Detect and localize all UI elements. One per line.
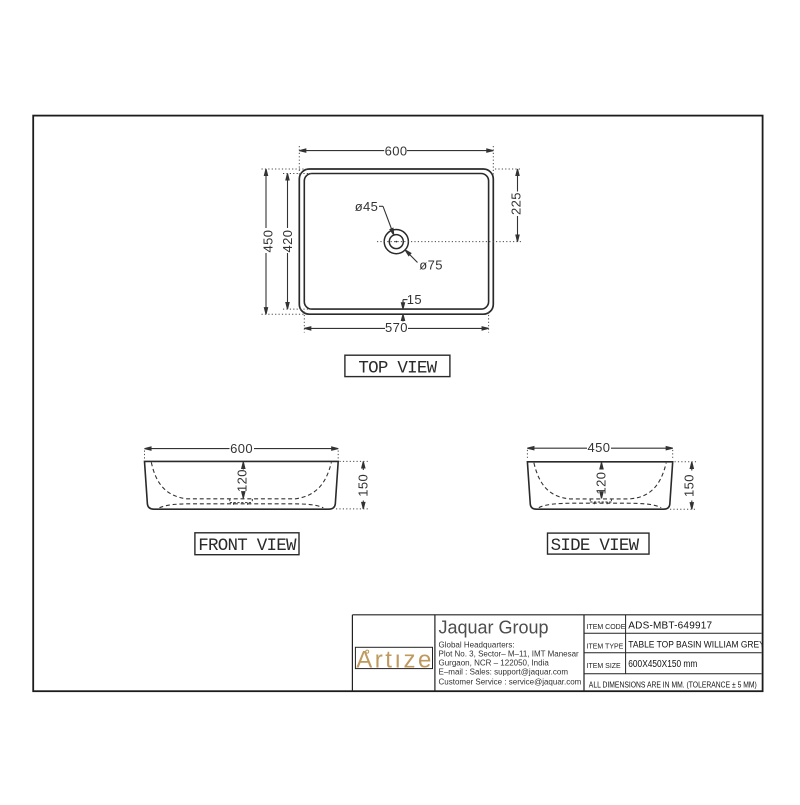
svg-text:TABLE TOP BASIN WILLIAM GREY: TABLE TOP BASIN WILLIAM GREY (628, 640, 765, 651)
svg-text:TOP VIEW: TOP VIEW (358, 359, 437, 379)
svg-text:ø75: ø75 (419, 258, 443, 273)
svg-text:150: 150 (682, 474, 697, 497)
svg-text:SIDE VIEW: SIDE VIEW (551, 536, 640, 556)
svg-text:120: 120 (234, 469, 249, 492)
svg-text:ADS-MBT-649917: ADS-MBT-649917 (628, 621, 712, 632)
svg-text:150: 150 (356, 474, 371, 497)
svg-text:Plot No. 3, Sector– M–11, IMT: Plot No. 3, Sector– M–11, IMT Manesar (439, 649, 580, 658)
svg-text:ITEM SIZE: ITEM SIZE (587, 663, 622, 670)
svg-text:450: 450 (261, 230, 276, 253)
svg-text:420: 420 (280, 230, 295, 253)
svg-text:ITEM TYPE: ITEM TYPE (587, 644, 624, 651)
svg-text:Jaquar Group: Jaquar Group (439, 618, 549, 638)
svg-text:15: 15 (407, 292, 422, 307)
svg-text:Global Headquarters:: Global Headquarters: (439, 640, 515, 649)
svg-text:ø45: ø45 (355, 199, 379, 214)
svg-text:225: 225 (509, 192, 524, 215)
svg-text:FRONT VIEW: FRONT VIEW (198, 536, 297, 556)
svg-text:600: 600 (230, 441, 253, 456)
svg-text:Customer Service : service@jaq: Customer Service : service@jaquar.com (439, 678, 582, 687)
svg-text:Gurgaon, NCR – 122050, India: Gurgaon, NCR – 122050, India (439, 659, 550, 668)
svg-text:ALL DIMENSIONS ARE IN MM. (TOL: ALL DIMENSIONS ARE IN MM. (TOLERANCE ± 5… (589, 680, 757, 689)
svg-text:600: 600 (385, 144, 408, 159)
svg-text:120: 120 (594, 472, 609, 495)
svg-text:E–mail : Sales: support@jaquar: E–mail : Sales: support@jaquar.com (439, 668, 569, 677)
svg-text:600X450X150 mm: 600X450X150 mm (628, 659, 697, 670)
svg-text:450: 450 (588, 440, 611, 455)
svg-text:570: 570 (385, 320, 408, 335)
svg-text:ITEM CODE: ITEM CODE (587, 624, 626, 631)
